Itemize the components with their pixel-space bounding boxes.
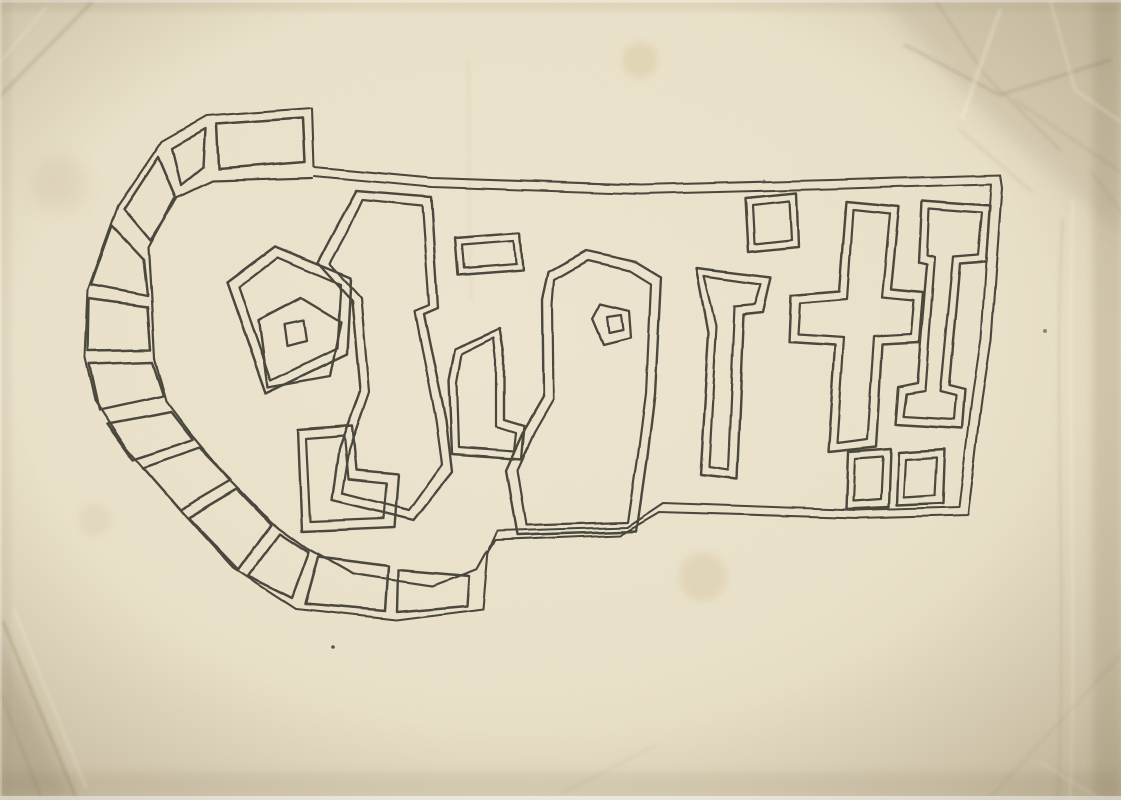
scanned-drawing-photo [0, 0, 1121, 800]
paper-grain [0, 0, 1121, 800]
paper-scan-canvas [0, 0, 1121, 800]
